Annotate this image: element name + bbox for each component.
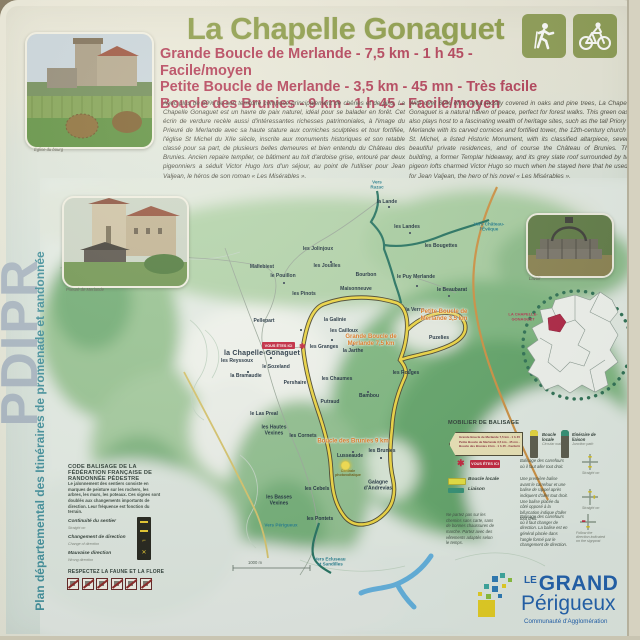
map-label-les-jolinjoux: les Jolinjoux (303, 247, 333, 253)
rule1-diagram (582, 454, 598, 470)
liaison-swatch-label: Liaison (468, 487, 485, 492)
map-label-le-sozeland: le Sozeland (262, 365, 290, 371)
mobilier-legend-header: MOBILIER DE BALISAGE (448, 420, 519, 426)
map-label-les-hautes-vexines: les Hautes Vexines (255, 425, 293, 437)
map-label-bourbon: Bourbon (356, 273, 377, 279)
map-label-les-reyssoux: les Reyssoux (221, 359, 253, 365)
sign-frame-edge-right (627, 0, 640, 640)
rule2-caption: Straight on (582, 506, 599, 510)
boucle-locale-swatch (448, 478, 466, 485)
no-picking-icon (67, 578, 79, 590)
map-label-putraud: Putraud (321, 400, 340, 406)
map-label-les-brunies: les Brunies (369, 449, 396, 455)
sign-frame-edge-bottom (0, 636, 640, 640)
liaison-swatch (448, 488, 464, 493)
no-litter-icon (140, 578, 152, 590)
prohibition-icons-row (67, 578, 152, 590)
map-label-la-verne: la Verne (405, 308, 424, 314)
post2-label-en: Junction path (572, 442, 600, 446)
logo-grand: GRAND (539, 575, 619, 593)
logo-tagline: Communauté d'Agglomération (524, 618, 607, 625)
map-label-les-cebels: les Cebels (305, 487, 330, 493)
map-label-les-pinots: les Pinots (292, 292, 316, 298)
no-fire-icon (82, 578, 94, 590)
no-vehicle-icon (96, 578, 108, 590)
fauna-header: RESPECTEZ LA FAUNE ET LA FLORE (68, 569, 164, 575)
map-label-bambou: Bambou (359, 394, 379, 400)
map-label-petite-boucle-de-merlande-3-5-km: Petite Boucle de Merlande 3,5 km (420, 309, 468, 323)
map-label-maisonneuve: Maisonneuve (340, 287, 372, 293)
map-label-centrale-photovolta-que: Centrale photovoltaïque (331, 469, 365, 477)
signpost-icon: Grande Boucle de Merlande 7,5 km - 1 h 4… (449, 432, 523, 456)
map-label-la-galinie: la Galinie (324, 318, 346, 324)
paint-mark-post-icon: ⌐ ✕ (137, 517, 151, 560)
map-label-vers-p-rigueux: Vers Périgueux (264, 522, 297, 527)
map-label-le-las-preal: le Las Preal (250, 412, 278, 418)
map-label-les-rouges: les Rouges (393, 371, 420, 377)
no-motorbike-icon (111, 578, 123, 590)
rule1-text: Balisage des carrefours où il faut aller… (520, 458, 566, 469)
map-label-les-cailloux: les Cailloux (330, 329, 358, 335)
code-item1-fr: Continuité du sentier (68, 519, 116, 524)
rule3-caption: Follow the direction indicated on the si… (576, 531, 606, 543)
code-legend-body: Le jalonnement des sentiers consiste en … (68, 481, 162, 515)
map-label-pellepart: Pellepart (253, 319, 274, 325)
map-label-la-lande: la Lande (377, 200, 397, 206)
grand-perigueux-logo: LE GRAND Périgueux Communauté d'Agglomér… (472, 572, 632, 634)
information-panel-photo: Église du bourg Prieuré de Merlande (0, 0, 640, 640)
code-legend-header: CODE BALISAGE DE LA FÉDÉRATION FRANÇAISE… (68, 464, 168, 482)
map-label-le-puy-merlande: le Puy Merlande (397, 275, 435, 281)
map-label-vers-ch-teau-l-v-que: Vers Château-l'Évêque (469, 222, 509, 233)
code-item2-fr: Changement de direction (68, 535, 126, 540)
logo-le: LE (524, 575, 537, 586)
map-scale-label: 1000 m (248, 560, 262, 565)
map-label-les-pontets: les Pontets (307, 517, 334, 523)
map-label-la-jarthe: la Jarthe (343, 349, 364, 355)
map-label-les-cornets: les Cornets (289, 434, 316, 440)
rule3-diagram (580, 514, 596, 530)
legend-you-are-here-star: ✱ (457, 458, 465, 469)
map-label-le-pouillon: le Pouillon (270, 274, 295, 280)
post2-label-fr: Itinéraire de liaison (572, 432, 600, 442)
code-item3-fr: Mauvaise direction (68, 551, 111, 556)
code-item2-en: Change of direction (68, 542, 99, 546)
you-are-here-badge: VOUS ÊTES ICI (262, 342, 295, 349)
legend-warning-text: Ne partez pas sur les chemins sans carte… (446, 512, 496, 546)
map-label-grande-boucle-de-merlande-7-5-km: Grande Boucle de Merlande 7,5 km (345, 334, 397, 348)
boucle-locale-post-icon (530, 430, 538, 458)
map-label-les-granges: les Granges (310, 345, 339, 351)
map-label-pershaire: Pershaire (284, 381, 307, 387)
map-label-puzelies: Puzelies (429, 336, 449, 342)
map-label-les-chaumes: les Chaumes (322, 377, 353, 383)
map-label-le-beaubarat: le Beaubarat (437, 288, 467, 294)
map-label-la-bramaudie: la Bramaudie (230, 374, 261, 380)
signpost-line-3: Boucle des Brunies 9 km - 1 h 45 - Facil… (459, 444, 520, 449)
map-label-les-jouilles: les Jouilles (314, 264, 341, 270)
map-label-mallebiest: Mallebiest (250, 265, 274, 271)
rule1-caption: Straight on (582, 471, 599, 475)
logo-perigueux: Périgueux (521, 594, 616, 613)
map-label-les-bougettes: les Bougettes (425, 244, 458, 250)
map-label-la-chapelle-gonaguet: la Chapelle-Gonaguet (224, 350, 300, 358)
solar-plant-icon (341, 461, 350, 470)
map-label-galagne-d-andrevias: Galagne d'Andrevias (357, 480, 399, 492)
legend-you-are-here-badge: VOUS ÊTES ICI (470, 460, 500, 468)
map-label-vers-ecluseau-et-sandilles: Vers Ecluseau et Sandilles (312, 557, 348, 568)
no-dogs-icon (125, 578, 137, 590)
liaison-post-labels: Itinéraire de liaison Junction path (572, 432, 600, 446)
you-are-here-star: ✱ (299, 342, 306, 351)
map-label-vers-razac: Vers Razac (366, 180, 388, 191)
map-label-les-basses-vexines: les Basses Vexines (260, 495, 298, 507)
logo-mosaic (472, 572, 522, 634)
map-label-lusseaude: Lusseaude (337, 454, 363, 460)
rule2-diagram (582, 489, 598, 505)
signpost-line-1: Grande Boucle de Merlande 7,5 km - 1 h 4… (459, 435, 520, 440)
code-item1-en: Straight on (68, 526, 85, 530)
boucle-locale-swatch-label: Boucle locale (468, 477, 499, 482)
liaison-post-icon (561, 430, 569, 458)
map-label-les-landes: les Landes (394, 225, 420, 231)
map-label-boucle-des-brunies-9-km: Boucle des Brunies 9 km (317, 439, 388, 446)
rule3-text: Balisage des carrefours où il faut chang… (520, 514, 568, 548)
code-item3-en: Wrong direction (68, 558, 93, 562)
